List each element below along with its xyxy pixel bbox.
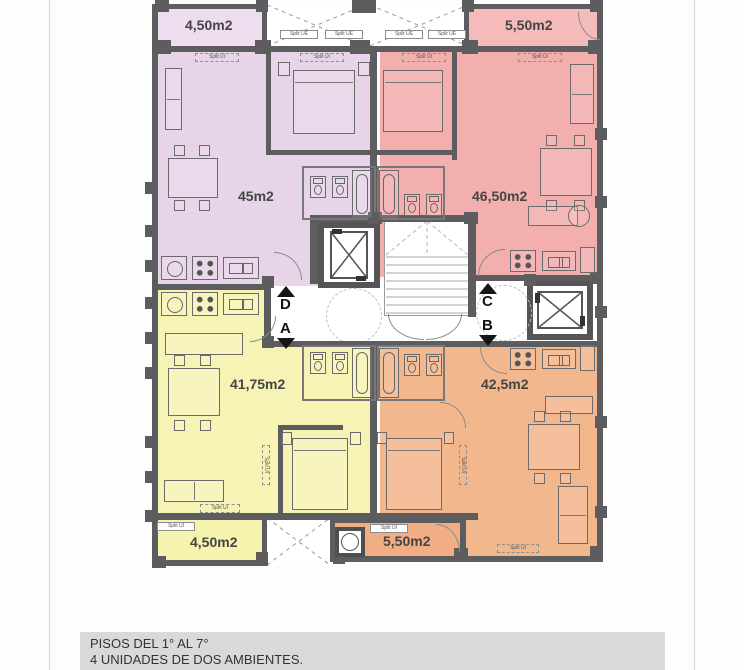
column [145,436,157,448]
column [145,225,157,237]
toilet [404,194,420,216]
chair [546,135,557,146]
bathtub [352,348,372,398]
column [155,0,169,12]
chair [174,145,185,156]
dining-table [528,424,580,470]
fridge [580,247,595,273]
bed [292,438,348,510]
caption-bar: PISOS DEL 1° AL 7° 4 UNIDADES DE DOS AMB… [80,632,665,670]
split-ue-tag: Split UE [428,30,466,39]
column [464,212,478,224]
column [590,546,603,560]
kitchen-counter [223,257,259,279]
area-label: 5,50m2 [505,17,552,33]
sofa [570,64,594,124]
wall [597,8,603,560]
fridge [580,345,595,371]
area-label: 45m2 [238,188,274,204]
floor-plan-page: 4,50m2 5,50m2 45m2 46,50m2 41,75m2 42,5m… [0,0,744,670]
column [145,471,157,483]
chair [199,145,210,156]
bidet [426,194,442,216]
chair [560,473,571,484]
wall [283,425,343,430]
column [350,40,370,54]
wall [452,52,457,160]
split-ui-tag: Split UI [157,522,195,531]
arrow-down-icon [277,338,295,349]
wall [152,284,271,290]
elevator-symbol [318,222,380,288]
kitchen-stove [510,250,536,272]
area-label: 4,50m2 [185,17,232,33]
wall [152,46,603,52]
column [145,260,157,272]
split-ue-tag: Split UE [325,30,363,39]
marker-b: B [482,317,493,334]
wall [333,518,466,523]
column [462,40,478,54]
column [145,510,157,522]
dining-table [168,158,218,198]
chair [199,200,210,211]
marker-d: D [280,296,291,313]
kitchen-counter [542,349,576,369]
kitchen-counter [542,251,576,271]
wall [152,560,267,566]
bed [386,438,442,510]
split-ui-tag: Split UI [518,53,562,62]
area-label: 41,75m2 [230,376,285,392]
sofa [165,68,182,130]
stair-treads [385,219,469,315]
kitchen-stove [510,348,536,370]
kitchen-counter [223,293,259,315]
chair [200,355,211,366]
column [145,332,157,344]
elevator-right [527,280,593,340]
column [595,416,607,428]
kitchen-sink [161,292,187,316]
wall [377,150,457,155]
column [524,274,536,286]
column [595,306,607,318]
bidet [426,354,442,376]
column [145,367,157,379]
column [256,0,268,12]
column [152,556,166,568]
caption-line1: PISOS DEL 1° AL 7° [90,636,665,652]
water-heater [335,527,365,557]
kitchen-sink [161,256,187,280]
dining-table [540,148,592,196]
bidet [332,176,348,198]
bidet [332,352,348,374]
column [595,506,607,518]
split-ui-tag: Split UI [459,445,467,485]
nightstand [281,432,292,445]
column [145,297,157,309]
dining-table [168,368,220,416]
chair [534,411,545,422]
split-ui-tag: Split UI [300,53,344,62]
column [145,182,157,194]
kitchen-island [165,333,243,355]
column [262,276,274,288]
area-label: 46,50m2 [472,188,527,204]
nightstand [278,62,290,76]
nightstand [358,62,370,76]
kitchen-stove [192,256,218,280]
column [155,40,171,54]
chair [174,355,185,366]
split-ui-tag: Split UI [262,445,270,485]
split-ui-tag: Split UI [200,504,240,513]
column [352,0,376,13]
chair [200,420,211,431]
caption-line2: 4 UNIDADES DE DOS AMBIENTES. [90,652,665,668]
split-ue-tag: Split UE [385,30,423,39]
page-border-left [49,0,50,670]
air-shaft-dashes [267,518,330,565]
column [255,40,271,54]
split-ui-tag: Split UI [497,544,539,553]
column [462,0,474,12]
bathtub [379,170,399,218]
wall [468,215,476,317]
column [588,40,603,54]
staircase [384,218,470,316]
split-ui-tag: Split UI [370,524,408,533]
split-ui-tag: Split UI [195,53,239,62]
kitchen-stove [192,292,218,316]
bathtub [352,170,372,218]
marker-a: A [280,320,291,337]
page-border-right [694,0,695,670]
area-label: 42,5m2 [481,376,528,392]
turning-circle [326,288,382,344]
chair [174,420,185,431]
marker-c: C [482,293,493,310]
wall [152,4,266,9]
wall [266,52,271,155]
chair [534,473,545,484]
column [256,552,268,566]
chair [574,135,585,146]
column [595,196,607,208]
toilet [310,352,326,374]
area-label: 4,50m2 [190,534,237,550]
nightstand [377,432,387,444]
stool [568,205,590,227]
column [590,0,603,12]
wall [464,4,603,9]
nightstand [444,432,454,444]
arrow-down-icon [479,335,497,346]
column [595,128,607,140]
bed [383,70,443,132]
toilet [310,176,326,198]
elevator-left [318,222,380,288]
split-ui-tag: Split UI [402,53,446,62]
toilet [404,354,420,376]
split-ue-tag: Split UE [280,30,318,39]
wall [310,222,318,284]
wall [266,150,376,155]
sofa [164,480,224,502]
sofa [558,486,588,544]
wall [333,556,603,562]
column [590,272,603,284]
air-shaft-bottom [267,518,330,565]
chair [174,200,185,211]
elevator-symbol [527,280,593,340]
nightstand [350,432,361,445]
bed [293,70,355,134]
chair [560,411,571,422]
bathtub [379,348,399,398]
area-label: 5,50m2 [383,533,430,549]
